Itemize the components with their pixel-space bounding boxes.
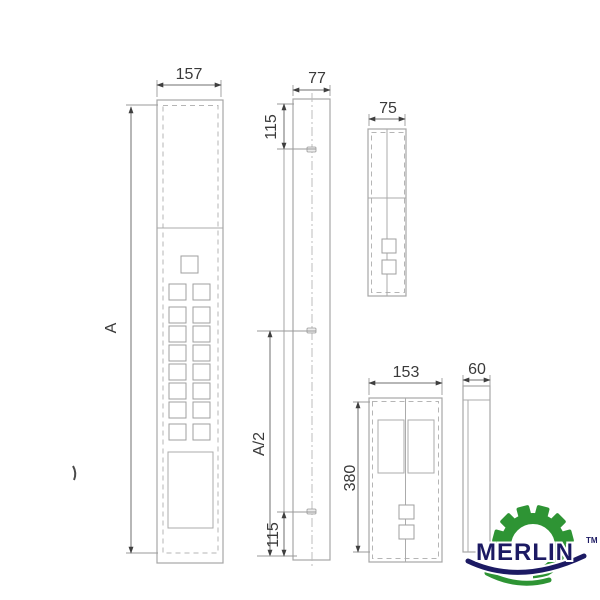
call-button bbox=[169, 307, 186, 323]
dim-side-top-offset: 115 bbox=[263, 104, 316, 149]
call-button bbox=[193, 307, 210, 323]
dim-side-top-offset-label: 115 bbox=[263, 114, 280, 140]
fixing-hole-bottom bbox=[307, 509, 316, 514]
dim-hall-width: 153 bbox=[369, 364, 442, 395]
fixing-hole-top bbox=[307, 147, 316, 152]
dim-side-depth-label: 77 bbox=[308, 70, 326, 87]
merlin-logo: MERLIN TM bbox=[468, 505, 598, 584]
call-button bbox=[169, 326, 186, 342]
dim-side-depth: 77 bbox=[293, 70, 330, 96]
call-button bbox=[193, 424, 210, 440]
front-bottom-plate bbox=[168, 452, 213, 528]
print-artifact-mark bbox=[73, 466, 75, 480]
call-button bbox=[193, 284, 210, 300]
side-view: 77 115 A/2 115 bbox=[251, 70, 330, 566]
hall-panel-view: 153 380 bbox=[342, 364, 442, 562]
front-view: 157 A bbox=[103, 66, 223, 563]
dim-hall-side-depth-label: 60 bbox=[468, 361, 486, 378]
call-button bbox=[169, 383, 186, 399]
dim-side-half-height-label: A/2 bbox=[251, 432, 268, 456]
dim-hall-height-label: 380 bbox=[342, 465, 359, 492]
dim-aux-width: 75 bbox=[369, 100, 405, 126]
aux-panel-view: 75 bbox=[368, 100, 406, 296]
hall-side-view: 60 bbox=[463, 361, 490, 552]
dim-hall-side-depth: 60 bbox=[463, 361, 490, 392]
aux-button-down bbox=[382, 260, 396, 274]
call-button bbox=[193, 364, 210, 380]
call-button bbox=[193, 383, 210, 399]
dim-hall-width-label: 153 bbox=[393, 364, 420, 381]
hall-indicator-right bbox=[408, 420, 434, 473]
dim-aux-width-label: 75 bbox=[379, 100, 397, 117]
elevator-panel-drawing: 157 A 77 115 bbox=[0, 0, 600, 600]
hall-button-up bbox=[399, 505, 414, 519]
call-button bbox=[169, 345, 186, 361]
hall-button-down bbox=[399, 525, 414, 539]
call-button bbox=[193, 345, 210, 361]
technical-drawing-page: 157 A 77 115 bbox=[0, 0, 600, 600]
call-button bbox=[169, 402, 186, 418]
hall-side-outline bbox=[463, 386, 490, 552]
call-button bbox=[169, 424, 186, 440]
call-button bbox=[193, 402, 210, 418]
front-button-grid bbox=[169, 284, 210, 440]
dim-side-bottom-offset-label: 115 bbox=[265, 522, 282, 548]
trademark-symbol: TM bbox=[586, 536, 598, 545]
fixing-hole-middle bbox=[307, 328, 316, 333]
call-button bbox=[169, 364, 186, 380]
alarm-button bbox=[181, 256, 198, 273]
dim-front-width-label: 157 bbox=[176, 66, 203, 83]
dim-front-height: A bbox=[103, 105, 158, 553]
brand-wordmark: MERLIN bbox=[476, 539, 574, 566]
call-button bbox=[169, 284, 186, 300]
call-button bbox=[193, 326, 210, 342]
aux-button-up bbox=[382, 239, 396, 253]
dim-front-height-label: A bbox=[103, 322, 120, 333]
dim-hall-height: 380 bbox=[342, 402, 370, 552]
dim-front-width: 157 bbox=[157, 66, 221, 97]
hall-indicator-left bbox=[378, 420, 404, 473]
dim-side-bottom-offset: 115 bbox=[257, 512, 316, 556]
